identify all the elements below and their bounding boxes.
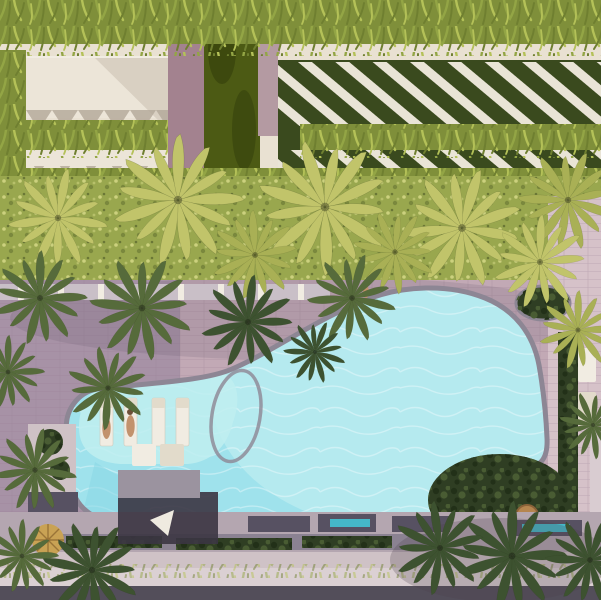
fern-tips (300, 146, 601, 158)
cabana-lounger (132, 444, 156, 466)
fern-texture (0, 50, 26, 180)
fern-tips (0, 146, 168, 158)
building-band (0, 0, 601, 196)
pool-lounger (176, 398, 189, 446)
aerial-pool-render (0, 0, 601, 600)
fern-tips (0, 42, 601, 56)
green-wall-blotch (232, 90, 256, 170)
pool-lounger (152, 398, 165, 446)
pergola-slats-upper (278, 62, 601, 126)
render-canvas (0, 0, 601, 600)
hedge-texture (302, 536, 392, 548)
planter-wall (248, 516, 310, 532)
cabana-platform (118, 470, 200, 498)
fern-texture (0, 120, 168, 150)
fern-texture (0, 0, 601, 44)
infinity-edge-slot (330, 519, 370, 527)
cabana-lounger (160, 444, 184, 466)
